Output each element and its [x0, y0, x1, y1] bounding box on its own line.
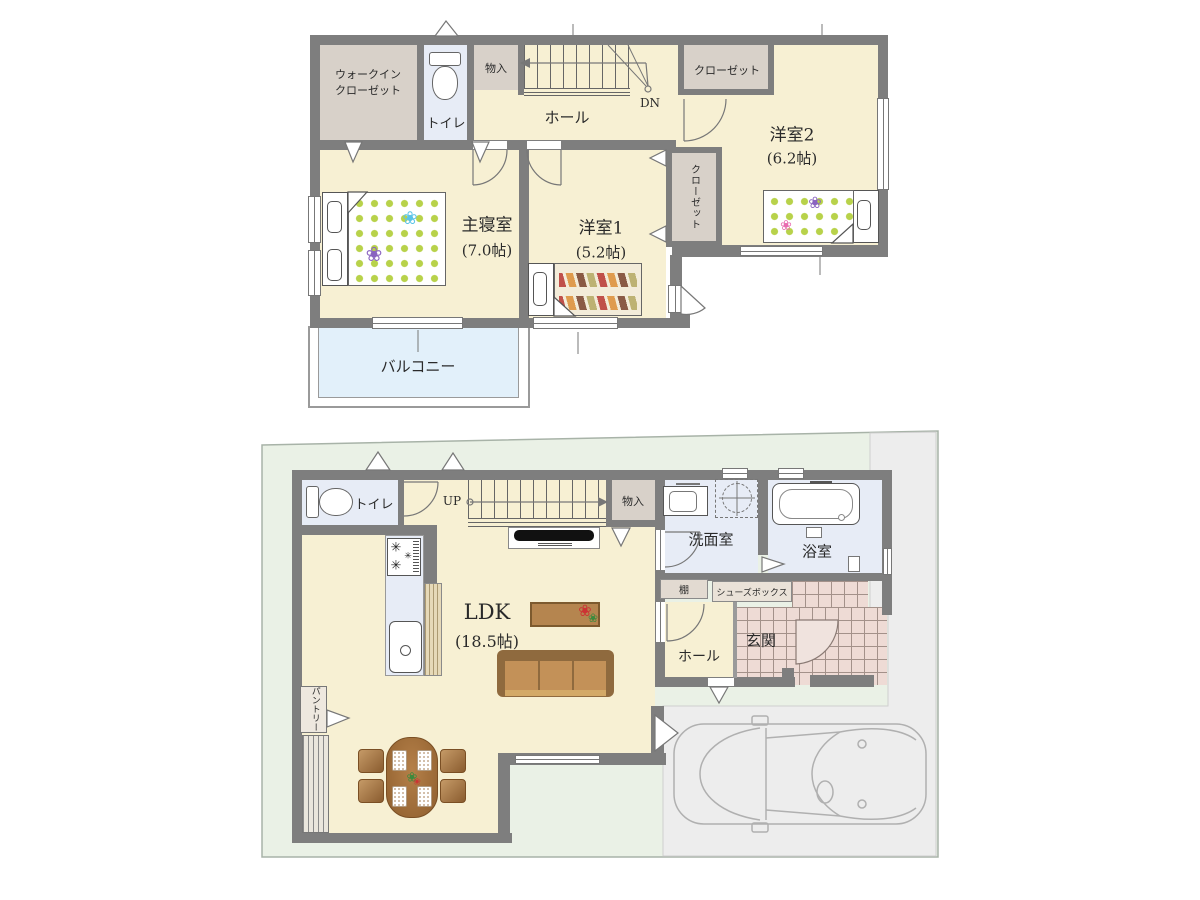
window — [740, 246, 823, 256]
wall — [424, 535, 437, 583]
chair — [440, 749, 466, 773]
room-label-room2: 洋室2 — [770, 121, 815, 146]
room-label-hall1: ホール — [678, 646, 720, 666]
window — [883, 548, 892, 575]
flower-icon: ❀ — [808, 195, 821, 211]
wall — [670, 255, 682, 285]
faucet-icon — [400, 645, 411, 656]
door-arc-room1-east — [681, 286, 705, 314]
door-opening — [473, 141, 507, 149]
wall — [606, 520, 656, 527]
room-label-storage2: 物入 — [485, 60, 507, 76]
room-label-master: 主寝室 — [462, 211, 513, 236]
tub-handle — [810, 481, 832, 484]
sofa-seat — [505, 661, 606, 690]
burner-icon: ✳ — [391, 560, 402, 573]
room-label-bath: 浴室 — [802, 541, 832, 562]
stairs-dn-label: DN — [640, 96, 660, 110]
wall — [670, 313, 690, 328]
room-size-room2: (6.2帖) — [767, 148, 818, 169]
room-label-shoebox: シューズボックス — [716, 586, 787, 599]
burner-icon: ✳ — [404, 553, 412, 562]
hall-entrance-step — [733, 602, 737, 678]
window — [515, 755, 600, 764]
room-label-pantry: パントリー — [309, 687, 318, 732]
room-label-ldk: LDK — [464, 600, 510, 624]
drain-icon — [838, 514, 845, 521]
wall — [758, 477, 768, 555]
chair — [440, 779, 466, 803]
flower-icon: ❀ — [413, 779, 421, 788]
pillow-icon — [327, 249, 342, 281]
wall — [292, 470, 302, 843]
flower-icon: ❀ — [402, 210, 417, 228]
vanity-bowl — [669, 491, 697, 512]
tick-marks — [573, 24, 822, 35]
stairs1-landing — [468, 518, 608, 527]
vent-icon — [442, 453, 464, 470]
place-mat — [392, 786, 407, 807]
pillow-icon — [327, 201, 342, 233]
room-label-shelf: 棚 — [679, 582, 689, 597]
sofa-front — [505, 690, 606, 696]
room-label-closet-side: クローゼット — [687, 164, 702, 230]
toilet-tank-icon — [306, 486, 319, 518]
stairs2 — [524, 45, 630, 88]
room-label-toilet2: トイレ — [426, 113, 465, 132]
chair — [358, 779, 384, 803]
place-mat — [417, 786, 432, 807]
wall — [467, 45, 474, 140]
counter-bar — [424, 583, 442, 676]
washing-machine-drum — [722, 483, 752, 513]
door-opening — [708, 678, 734, 686]
car-icon — [674, 716, 926, 832]
window — [778, 468, 804, 479]
chair — [358, 749, 384, 773]
room-label-washroom: 洗面室 — [688, 529, 733, 550]
burner-icon: ✳ — [391, 542, 402, 555]
room-label-hall2: ホール — [544, 107, 589, 128]
louver-panel — [302, 735, 329, 833]
bed-pattern — [559, 296, 637, 310]
door-opening — [668, 285, 682, 313]
wall — [417, 45, 424, 140]
bath-counter-icon — [848, 556, 860, 572]
pillow-icon — [857, 200, 871, 230]
wall — [882, 470, 892, 615]
room-size-master: (7.0帖) — [462, 240, 513, 261]
sofa-divider — [572, 661, 574, 690]
wall — [302, 525, 437, 535]
room-label-entrance: 玄関 — [746, 630, 776, 651]
wall — [651, 706, 664, 764]
vent-icon — [435, 21, 458, 36]
window — [722, 468, 748, 479]
wall — [398, 480, 404, 527]
window — [372, 317, 463, 329]
room-size-ldk: (18.5帖) — [455, 628, 519, 652]
wall — [498, 753, 510, 843]
place-mat — [417, 750, 432, 771]
grill-icon — [413, 541, 419, 573]
window — [308, 250, 321, 296]
vent-icon — [366, 452, 390, 470]
pillow-icon — [533, 272, 547, 306]
double-bed — [348, 192, 446, 286]
bath-stool-icon — [806, 527, 822, 538]
window — [308, 196, 321, 243]
room-size-room1: (5.2帖) — [576, 242, 627, 263]
room-label-balcony: バルコニー — [381, 356, 456, 377]
wall — [518, 45, 524, 95]
door-opening — [656, 602, 665, 642]
stairs1 — [468, 480, 608, 518]
tv-stand — [538, 543, 572, 546]
toilet-bowl-icon — [432, 66, 458, 100]
tv-icon — [514, 530, 594, 541]
room-label-toilet1: トイレ — [354, 494, 393, 513]
single-bed — [554, 263, 642, 316]
flower-icon: ❀ — [780, 219, 792, 233]
room-label-room1: 洋室1 — [579, 214, 624, 239]
place-mat — [392, 750, 407, 771]
room-label-wic: ウォークインクローゼット — [335, 66, 401, 98]
door-opening — [656, 530, 665, 570]
toilet-bowl-icon — [319, 488, 353, 516]
flower-icon: ❀ — [366, 244, 383, 264]
toilet-tank-icon — [429, 52, 461, 66]
wall — [310, 35, 888, 45]
bed-pattern — [559, 273, 637, 287]
window — [877, 98, 889, 190]
wall — [310, 318, 690, 328]
window — [533, 317, 618, 329]
wall — [810, 675, 874, 687]
flower-icon: ❀ — [588, 612, 598, 624]
room-label-storage1: 物入 — [622, 493, 644, 509]
floorplan-canvas: ❀ ❀ ❀ ❀ ウォークインクローゼット トイレ 物入 ホール DN クローゼッ… — [0, 0, 1200, 900]
room-label-closet-top: クローゼット — [694, 62, 760, 78]
wall — [292, 833, 512, 843]
sofa-divider — [538, 661, 540, 690]
door-opening — [527, 141, 561, 149]
stairs-up-label: UP — [443, 494, 461, 508]
stairs2-landing — [524, 88, 630, 96]
porch-step-icon — [710, 687, 728, 703]
